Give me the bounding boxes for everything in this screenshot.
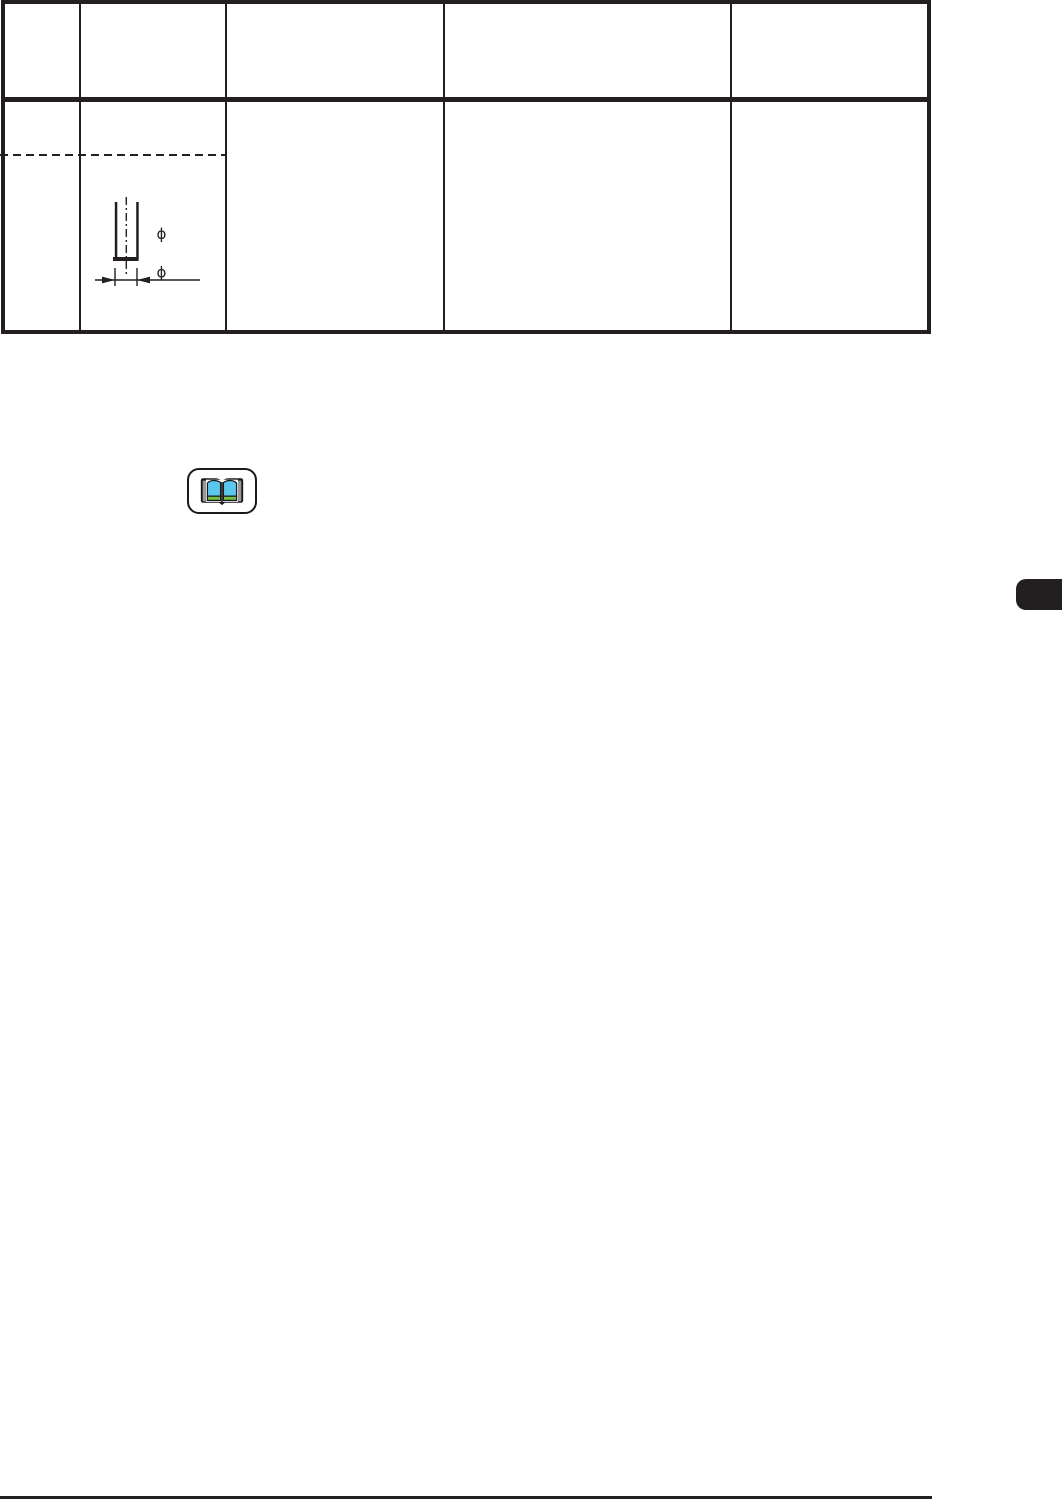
book-edge-left bbox=[203, 481, 206, 502]
book-page-left bbox=[207, 480, 220, 496]
book-page-right bbox=[223, 480, 236, 496]
tube-left-wall bbox=[115, 202, 118, 260]
table-header-row bbox=[5, 4, 927, 102]
dashed-cut-line bbox=[0, 154, 226, 156]
table-cell bbox=[732, 102, 927, 330]
needle-width-diagram: ϕ ϕ bbox=[80, 185, 210, 295]
table-header-cell bbox=[732, 4, 927, 97]
footer-rule bbox=[0, 1496, 932, 1499]
phi-symbol-inner: ϕ bbox=[157, 225, 167, 243]
arrow-left-icon bbox=[102, 277, 115, 284]
arrow-right-icon bbox=[137, 277, 150, 284]
tube-right-wall bbox=[136, 202, 139, 260]
open-book-icon bbox=[197, 475, 247, 507]
manual-reference-button bbox=[187, 468, 257, 514]
book-edge-right bbox=[238, 481, 241, 502]
table-cell bbox=[445, 102, 732, 330]
book-base-right bbox=[223, 496, 236, 500]
table-cell bbox=[227, 102, 445, 330]
table-header-cell bbox=[5, 4, 81, 97]
table-cell bbox=[5, 102, 81, 330]
table-header-cell bbox=[227, 4, 445, 97]
phi-symbol-outer: ϕ bbox=[157, 264, 167, 282]
table-header-cell bbox=[445, 4, 732, 97]
page: ϕ ϕ bbox=[0, 0, 1062, 1501]
chapter-thumb-tab bbox=[1016, 579, 1062, 610]
table-header-cell bbox=[81, 4, 227, 97]
book-base-left bbox=[207, 496, 220, 500]
